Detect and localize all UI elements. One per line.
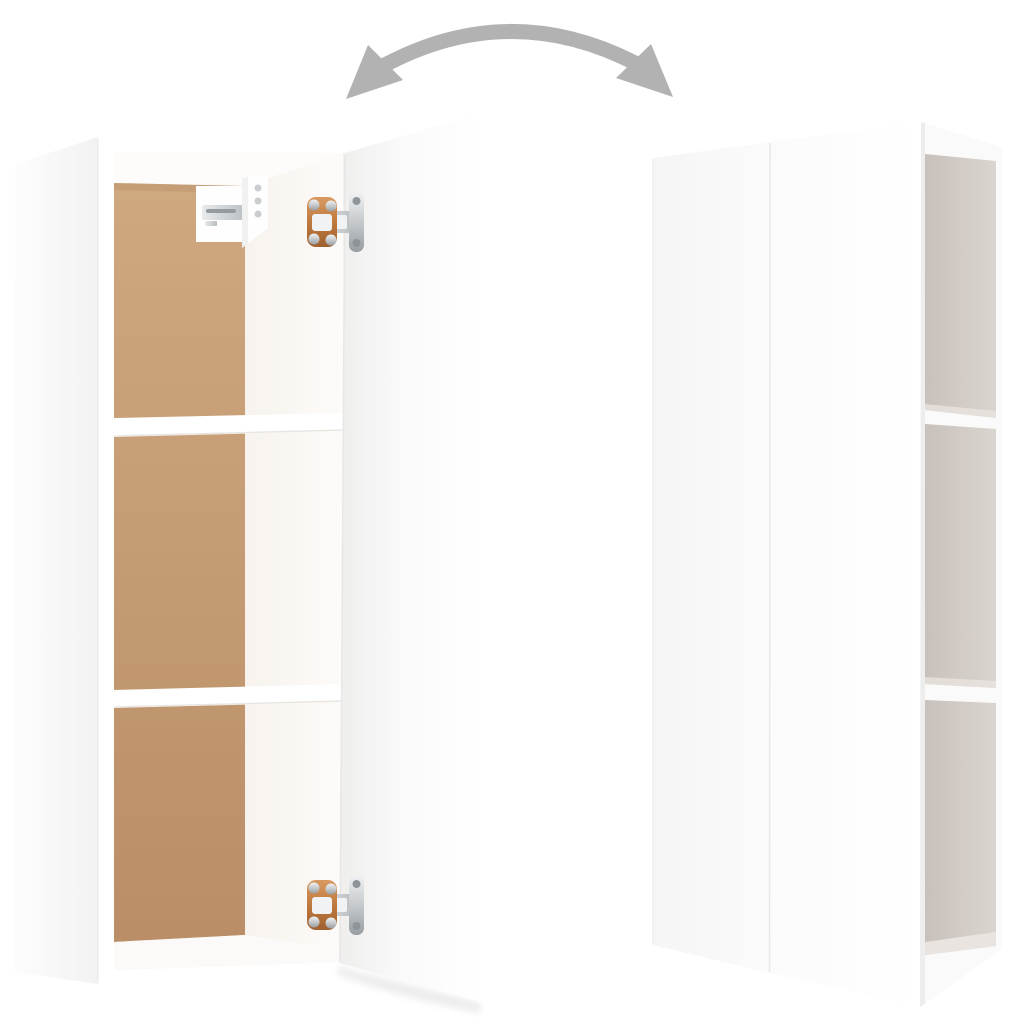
hinge-plate-screw	[353, 197, 361, 205]
hinge-cup-center	[312, 214, 332, 231]
cabinet-left-front-edge	[98, 137, 114, 984]
hinge-cup-screw	[326, 235, 337, 246]
hinge-plate-screw	[353, 239, 361, 247]
hinge-cup-screw	[326, 884, 337, 895]
open-cabinet	[14, 114, 481, 1013]
hinge-cup-screw	[309, 883, 320, 894]
hinge-cup-screw	[309, 234, 320, 245]
cabinet-back-panel	[114, 183, 245, 942]
side-niche-middle	[925, 424, 996, 688]
hinge-cup-screw	[326, 201, 337, 212]
side-niche-top	[925, 154, 996, 418]
bracket-rail-tab	[205, 221, 217, 226]
closed-front-right-half	[770, 122, 921, 1007]
side-niche-bottom	[925, 700, 996, 955]
hinge-plate-screw	[353, 922, 361, 930]
hinge-plate-screw	[353, 880, 361, 888]
bracket-screw-hole	[255, 211, 262, 218]
hinge-cup-screw	[309, 200, 320, 211]
closed-front-left-half	[653, 142, 770, 973]
bracket-body-shade	[242, 177, 248, 248]
product-photo	[0, 0, 1024, 1024]
bracket-screw-hole	[255, 198, 262, 205]
bracket-rail-slot	[206, 209, 236, 213]
cabinet-left-side-panel	[14, 137, 98, 984]
closed-cabinet	[653, 122, 1002, 1007]
cabinet-product-illustration	[0, 0, 1024, 1024]
hinge-cup-screw	[309, 917, 320, 928]
hinge-cup-screw	[326, 918, 337, 929]
bracket-screw-hole	[255, 185, 262, 192]
closed-front-seam	[770, 143, 771, 972]
hinge-cup-center	[312, 897, 332, 914]
